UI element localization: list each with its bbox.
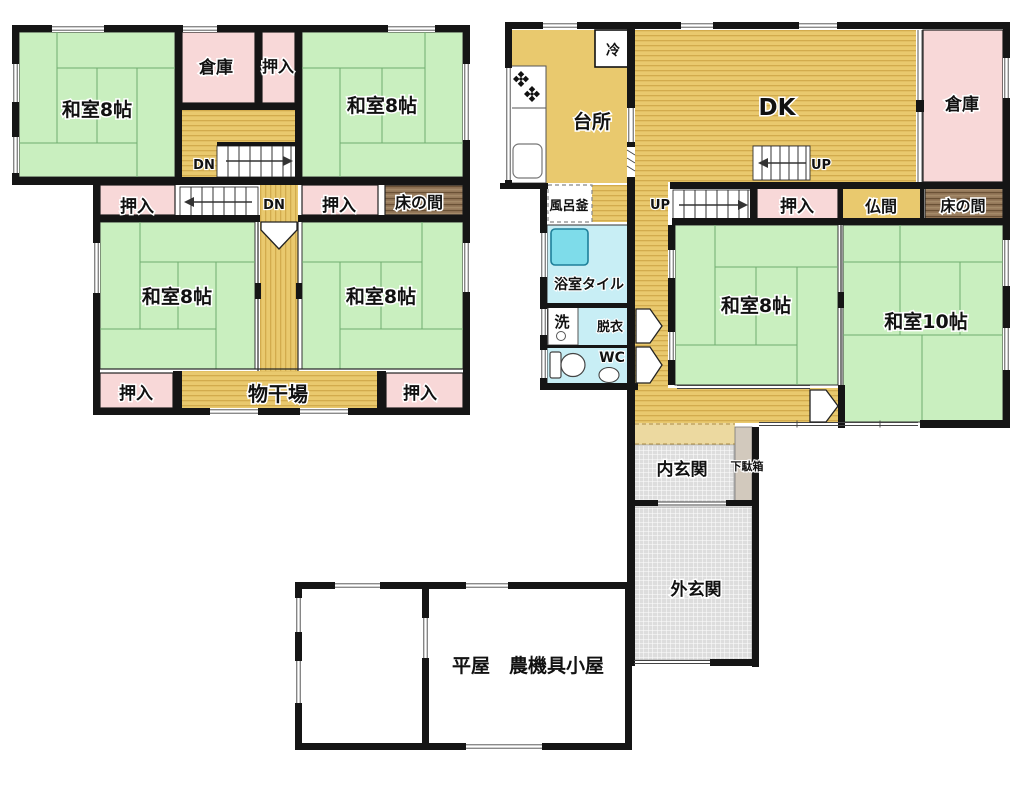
label-soto-genkan: 外玄関 — [671, 579, 722, 600]
sink-icon — [513, 144, 542, 178]
label-daidokoro: 台所 — [573, 110, 611, 133]
label-butsuma: 仏間 — [865, 197, 897, 216]
label-yokushitsu: 浴室タイル — [554, 276, 624, 293]
stairs-up-lower — [673, 190, 753, 220]
label-outbuilding: 平屋 農機具小屋 — [452, 654, 604, 677]
stairs-up-upper — [753, 146, 810, 180]
door-kitchen-hall — [627, 147, 635, 177]
label-washitsu-sw: 和室8帖 — [142, 285, 212, 308]
label-tokonoma-2f: 床の間 — [395, 193, 443, 212]
label-dn-upper: DN — [193, 158, 215, 173]
label-washitsu8-1f: 和室8帖 — [721, 294, 791, 317]
label-up-lower: UP — [650, 198, 670, 213]
kitchen-counter — [508, 66, 546, 183]
label-monohoshiba: 物干場 — [248, 382, 308, 406]
door-kitchen-dk — [627, 108, 635, 142]
label-souko-1f: 倉庫 — [944, 94, 979, 115]
label-washitsu10: 和室10帖 — [884, 310, 967, 333]
floor-plan-drawing: 和室8帖 倉庫 押入 和室8帖 DN 押入 DN 押入 床の間 和室8帖 和室8… — [0, 0, 1024, 785]
bath-mat-icon — [599, 368, 619, 383]
corridor-1f-south — [635, 388, 838, 423]
label-oshiire-se: 押入 — [403, 383, 437, 404]
label-dn-lower: DN — [263, 198, 285, 213]
label-sen: 洗 — [554, 313, 569, 331]
label-datsui: 脱衣 — [597, 319, 623, 335]
label-furogama: 風呂釜 — [549, 198, 589, 214]
label-up-upper: UP — [811, 158, 831, 173]
label-oshiire-sw: 押入 — [119, 383, 153, 404]
washer-drain-icon — [557, 332, 566, 341]
outbuilding-plan: 平屋 農機具小屋 — [295, 582, 632, 750]
second-floor-plan: 和室8帖 倉庫 押入 和室8帖 DN 押入 DN 押入 床の間 和室8帖 和室8… — [12, 25, 470, 415]
label-souko-2f: 倉庫 — [198, 57, 233, 78]
label-washitsu-ne: 和室8帖 — [347, 94, 417, 117]
label-getabako: 下駄箱 — [731, 459, 764, 473]
label-oshiire-east: 押入 — [322, 195, 356, 216]
door-outbuilding-interior — [422, 618, 429, 658]
label-rei: 冷 — [606, 42, 620, 59]
bathtub-icon — [551, 229, 588, 265]
label-tokonoma-1f: 床の間 — [940, 197, 985, 215]
label-dk: DK — [759, 95, 797, 121]
stairs-dn-lower — [180, 187, 258, 217]
label-wc: WC — [599, 350, 625, 366]
label-oshiire-1f: 押入 — [780, 196, 814, 217]
label-washitsu-se: 和室8帖 — [346, 285, 416, 308]
label-oshiire-top: 押入 — [262, 57, 294, 76]
stairs-dn-upper — [217, 146, 298, 177]
toilet-icon — [550, 352, 585, 378]
first-floor-plan: 冷 台所 DK 倉庫 風呂釜 UP UP 押入 仏間 床の間 浴室タイル 洗 脱… — [500, 22, 1010, 667]
entry-step — [635, 423, 735, 445]
label-oshiire-west: 押入 — [120, 196, 154, 217]
label-uchi-genkan: 内玄関 — [657, 459, 708, 480]
burner-icon — [513, 71, 529, 87]
burner-icon — [524, 86, 540, 102]
label-washitsu-nw: 和室8帖 — [62, 98, 132, 121]
floor-plan-page: 和室8帖 倉庫 押入 和室8帖 DN 押入 DN 押入 床の間 和室8帖 和室8… — [0, 0, 1024, 785]
